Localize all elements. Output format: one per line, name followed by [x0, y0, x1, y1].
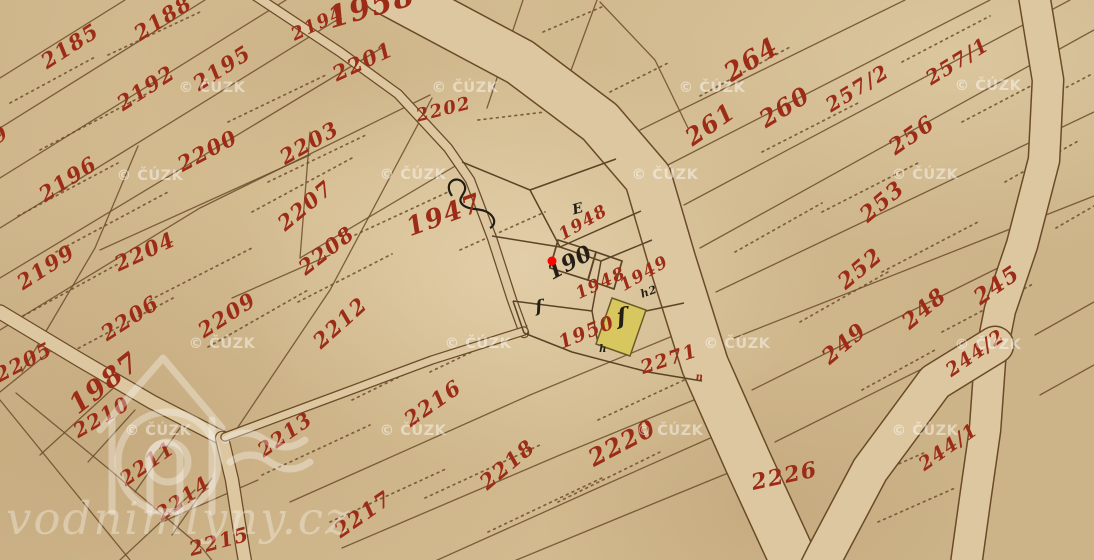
parcel-number-label: 2201 [327, 36, 397, 86]
selected-point-marker [548, 257, 557, 266]
copyright-watermark: © ČÚZK [955, 76, 1022, 94]
copyright-watermark: © ČÚZK [637, 421, 704, 439]
parcel-number-label: 2205 [0, 337, 57, 388]
copyright-watermark: © ČÚZK [189, 334, 256, 352]
parcel-number-label: 1948 [555, 201, 611, 245]
copyright-watermark: © ČÚZK [892, 421, 959, 439]
parcel-number-label: 2212 [307, 292, 372, 354]
copyright-watermark: © ČÚZK [179, 78, 246, 96]
parcel-number-label: 2196 [33, 151, 102, 208]
parcel-number-label: 249 [816, 317, 872, 370]
parcel-number-label: 2207 [272, 175, 338, 236]
parcel-number-label: 2199 [11, 239, 80, 296]
copyright-watermark: © ČÚZK [432, 78, 499, 96]
parcel-number-label: 2202 [413, 93, 473, 127]
parcel-number-label: 2218 [474, 434, 540, 495]
copyright-watermark: © ČÚZK [380, 165, 447, 183]
parcel-number-label: 2220 [582, 413, 661, 473]
copyright-watermark: © ČÚZK [704, 334, 771, 352]
copyright-watermark: © ČÚZK [380, 421, 447, 439]
cadastral-map-drawing: 2185218821922195219492196219922002203220… [0, 0, 1094, 560]
copyright-watermark: © ČÚZK [955, 335, 1022, 353]
parcel-number-label: 2192 [111, 60, 180, 117]
copyright-watermark: © ČÚZK [632, 165, 699, 183]
parcel-number-label: 253 [854, 175, 910, 228]
copyright-watermark: © ČÚZK [117, 166, 184, 184]
parcel-number-label: 2185 [35, 18, 104, 75]
parcel-number-label: 2188 [128, 0, 197, 46]
parcel-number-label: 260 [753, 80, 816, 134]
ink-symbol-mark: n [696, 372, 705, 383]
ink-symbol-mark: h [599, 344, 607, 355]
ink-symbol-mark: ſ [533, 296, 547, 317]
copyright-watermark: © ČÚZK [125, 421, 192, 439]
parcel-number-label: 2206 [95, 290, 164, 347]
cadastral-map-canvas[interactable]: 2185218821922195219492196219922002203220… [0, 0, 1094, 560]
parcel-number-label: 256 [883, 110, 940, 161]
copyright-watermark: © ČÚZK [679, 78, 746, 96]
ink-symbol-mark: E [570, 200, 586, 219]
parcel-number-label: 248 [896, 282, 952, 335]
parcel-number-label: 2209 [192, 287, 261, 344]
parcel-number-label: 2204 [109, 226, 179, 276]
copyright-watermark: © ČÚZK [445, 334, 512, 352]
copyright-watermark: © ČÚZK [892, 165, 959, 183]
parcel-number-label: 1947 [402, 188, 486, 243]
site-watermark-text: vodnimlyny.cz [6, 492, 351, 545]
